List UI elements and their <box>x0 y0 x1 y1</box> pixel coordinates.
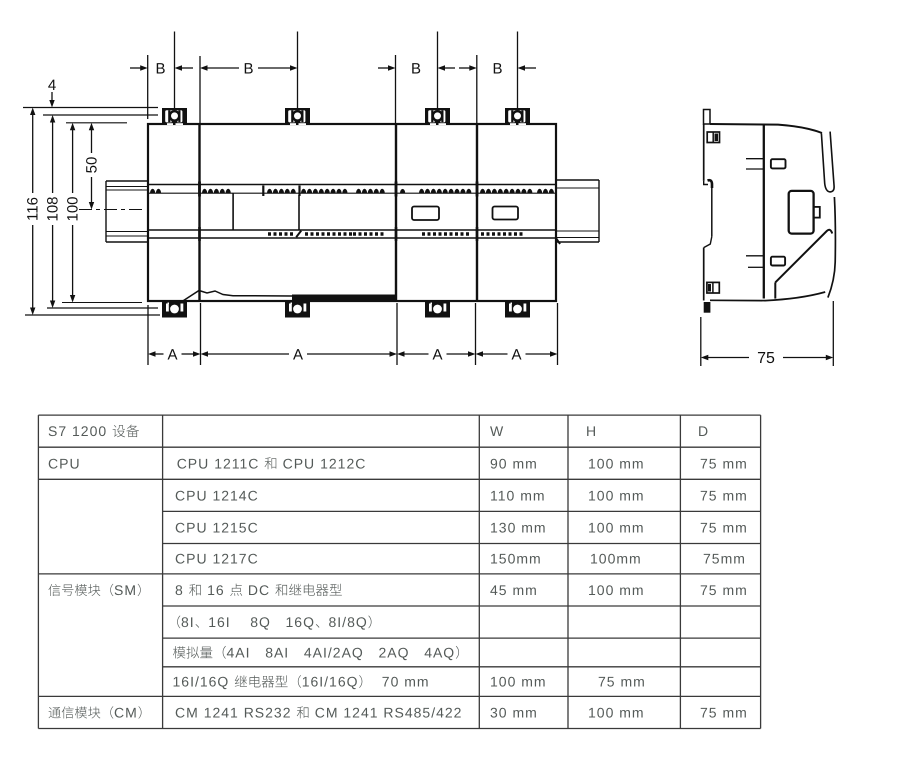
svg-text:30 mm: 30 mm <box>490 704 538 720</box>
svg-text:150mm: 150mm <box>490 551 542 567</box>
svg-text:B: B <box>155 61 165 78</box>
svg-text:1241: 1241 <box>204 704 239 720</box>
svg-text:CPU: CPU <box>177 455 210 471</box>
svg-text:90 mm: 90 mm <box>490 455 538 471</box>
svg-text:75 mm: 75 mm <box>700 704 748 720</box>
svg-text:100 mm: 100 mm <box>588 519 645 535</box>
svg-text:1212C: 1212C <box>320 455 366 471</box>
svg-text:75 mm: 75 mm <box>700 487 748 503</box>
svg-text:50: 50 <box>84 157 101 174</box>
svg-text:4AI/2AQ: 4AI/2AQ <box>304 644 364 660</box>
svg-text:A: A <box>167 347 177 364</box>
svg-text:mm: mm <box>404 674 429 690</box>
svg-text:100 mm: 100 mm <box>588 487 645 503</box>
svg-text:4: 4 <box>48 77 56 94</box>
svg-text:75 mm: 75 mm <box>700 455 748 471</box>
svg-text:CPU 1214C: CPU 1214C <box>175 487 259 503</box>
svg-text:116: 116 <box>25 197 42 221</box>
svg-text:100 mm: 100 mm <box>490 674 547 690</box>
svg-text:100 mm: 100 mm <box>588 582 645 598</box>
svg-text:A: A <box>293 347 303 364</box>
svg-text:D: D <box>698 423 709 439</box>
svg-text:S7: S7 <box>48 423 67 439</box>
svg-text:70: 70 <box>382 674 400 690</box>
svg-text:H: H <box>586 423 597 439</box>
svg-text:75mm: 75mm <box>703 551 746 567</box>
svg-text:SM: SM <box>114 582 137 598</box>
svg-text:16I/16Q: 16I/16Q <box>302 674 359 690</box>
svg-text:CM: CM <box>114 704 138 720</box>
svg-text:16I: 16I <box>208 614 230 630</box>
svg-text:8I/8Q: 8I/8Q <box>329 614 368 630</box>
svg-text:16Q: 16Q <box>286 614 315 630</box>
svg-text:RS485/422: RS485/422 <box>383 704 462 720</box>
svg-text:16I/16Q: 16I/16Q <box>173 674 230 690</box>
svg-text:108: 108 <box>45 196 62 221</box>
svg-text:16: 16 <box>207 582 225 598</box>
svg-text:A: A <box>432 347 442 364</box>
svg-text:CM: CM <box>315 704 339 720</box>
svg-text:1211C: 1211C <box>214 455 259 471</box>
svg-text:4AI: 4AI <box>227 644 251 660</box>
svg-text:2AQ: 2AQ <box>379 644 410 660</box>
svg-text:100 mm: 100 mm <box>588 455 645 471</box>
svg-text:A: A <box>511 347 521 364</box>
svg-text:8Q: 8Q <box>250 614 271 630</box>
svg-text:CPU: CPU <box>48 455 81 471</box>
svg-text:100mm: 100mm <box>590 551 642 567</box>
svg-text:4AQ: 4AQ <box>424 644 455 660</box>
svg-text:CPU: CPU <box>283 455 316 471</box>
svg-text:1241: 1241 <box>343 704 378 720</box>
svg-text:75 mm: 75 mm <box>598 674 646 690</box>
svg-text:130 mm: 130 mm <box>490 519 547 535</box>
svg-text:B: B <box>492 61 502 78</box>
svg-text:8: 8 <box>175 582 184 598</box>
svg-text:75: 75 <box>757 350 775 367</box>
svg-text:W: W <box>490 423 504 439</box>
svg-text:CPU 1215C: CPU 1215C <box>175 519 259 535</box>
svg-text:8I: 8I <box>181 614 195 630</box>
svg-text:110 mm: 110 mm <box>490 487 546 503</box>
svg-text:CPU 1217C: CPU 1217C <box>175 551 259 567</box>
svg-text:75 mm: 75 mm <box>700 582 748 598</box>
svg-text:8AI: 8AI <box>265 644 289 660</box>
svg-text:B: B <box>243 61 253 78</box>
svg-text:CM: CM <box>175 704 199 720</box>
svg-text:RS232: RS232 <box>244 704 292 720</box>
svg-text:45 mm: 45 mm <box>490 582 538 598</box>
svg-text:B: B <box>411 61 421 78</box>
svg-text:1200: 1200 <box>72 423 107 439</box>
svg-text:75 mm: 75 mm <box>700 519 748 535</box>
svg-text:DC: DC <box>248 582 270 598</box>
svg-text:100 mm: 100 mm <box>588 704 645 720</box>
